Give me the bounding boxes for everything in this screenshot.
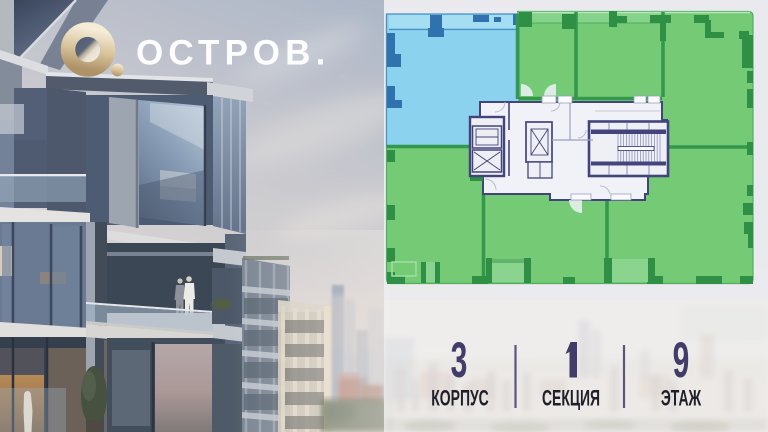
svg-text:3: 3 <box>451 332 468 388</box>
svg-text:КОРПУС: КОРПУС <box>431 385 488 410</box>
svg-text:9: 9 <box>673 332 690 388</box>
svg-text:ЭТАЖ: ЭТАЖ <box>661 385 701 410</box>
svg-text:СЕКЦИЯ: СЕКЦИЯ <box>542 385 600 410</box>
svg-text:ОСТРОВ.: ОСТРОВ. <box>136 34 331 73</box>
